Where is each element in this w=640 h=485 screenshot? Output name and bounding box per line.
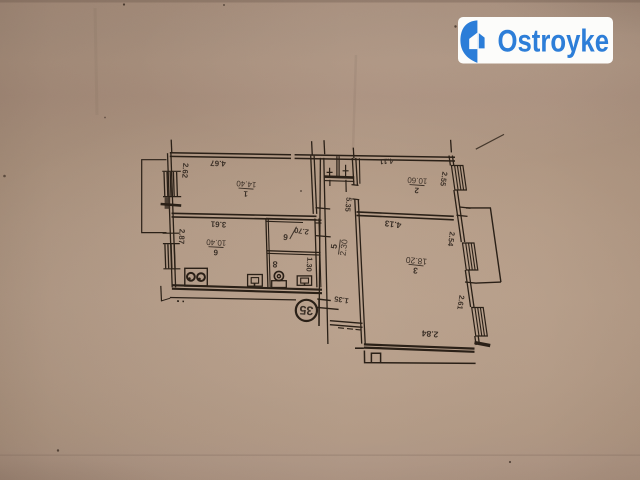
svg-text:3.61: 3.61: [210, 219, 227, 229]
svg-text:2.30: 2.30: [338, 238, 350, 256]
svg-text:1.30: 1.30: [304, 257, 314, 272]
svg-text:2.62: 2.62: [180, 163, 190, 179]
svg-text:10.60: 10.60: [407, 175, 428, 185]
svg-text:2.87: 2.87: [177, 229, 187, 245]
svg-text:4.11: 4.11: [379, 156, 394, 166]
svg-text:10.40: 10.40: [205, 237, 226, 247]
svg-text:4.67: 4.67: [210, 158, 226, 168]
svg-text:2.84: 2.84: [421, 328, 439, 339]
svg-text:35: 35: [299, 303, 314, 318]
svg-text:8: 8: [272, 259, 278, 269]
svg-text:5.35: 5.35: [343, 197, 353, 212]
svg-text:Ostroyke: Ostroyke: [498, 23, 610, 59]
svg-text:14.40: 14.40: [236, 179, 257, 189]
